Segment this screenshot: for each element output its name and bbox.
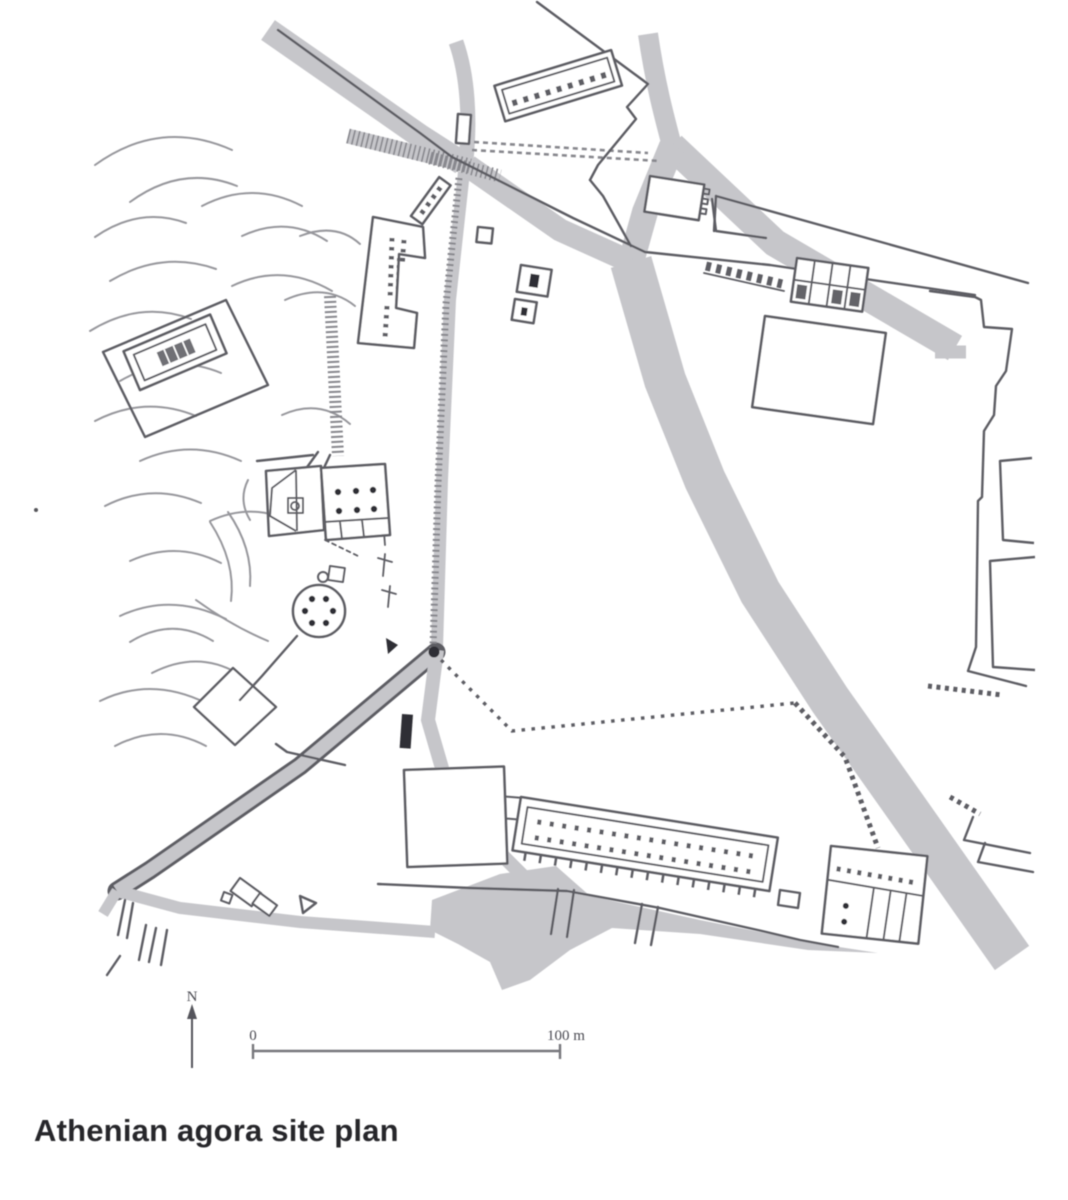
heliaia (404, 766, 524, 867)
northeast-building (644, 176, 710, 221)
stoa-poikile (494, 50, 621, 121)
hephaisteion (103, 300, 268, 437)
figure-caption: Athenian agora site plan (34, 1113, 399, 1148)
small-altar (512, 299, 537, 323)
road-stub-bottom-left (103, 891, 117, 914)
scale-start-label: 0 (249, 1028, 257, 1044)
scale-bar: 0 100 m (249, 1028, 585, 1059)
triangle-monument (300, 896, 316, 913)
stray-dot (34, 508, 38, 512)
hill-contours (90, 137, 360, 746)
north-arrow: N (187, 989, 198, 1068)
arrow-marker (386, 638, 398, 654)
colonnade-row (704, 266, 784, 291)
bouleuterion (266, 466, 324, 536)
hatched-terrace-strip (330, 296, 338, 456)
railway-cut (330, 136, 660, 648)
monument-base (400, 714, 413, 749)
road-bottom-west (117, 891, 435, 932)
stoa-of-attalos-outline (752, 316, 886, 424)
stoa-of-zeus (358, 217, 425, 348)
east-edge-rooms (990, 458, 1035, 670)
scale-end-label: 100 m (547, 1028, 585, 1044)
road-junction-node (429, 647, 440, 658)
tholos (293, 585, 345, 637)
road-east-avenue (672, 146, 955, 348)
site-plan-map: N 0 100 m Athenian agora site plan (0, 0, 1068, 1200)
royal-stoa (411, 177, 451, 224)
small-building-north (456, 114, 471, 144)
road-crossing-link (468, 166, 631, 262)
southeast-building (822, 846, 928, 944)
metroon (321, 464, 390, 540)
south-square-dotted-line (441, 660, 795, 731)
small-enclosure (476, 227, 492, 243)
grid-building (791, 258, 868, 312)
panathenaic-north-branch (648, 34, 672, 146)
tholos-annex (318, 566, 345, 582)
figure-athenian-agora-site-plan: N 0 100 m Athenian agora site plan (0, 0, 1068, 1200)
north-label: N (187, 989, 198, 1005)
map-drawing: N 0 100 m (34, 2, 1035, 1068)
altar-monument (517, 265, 552, 297)
